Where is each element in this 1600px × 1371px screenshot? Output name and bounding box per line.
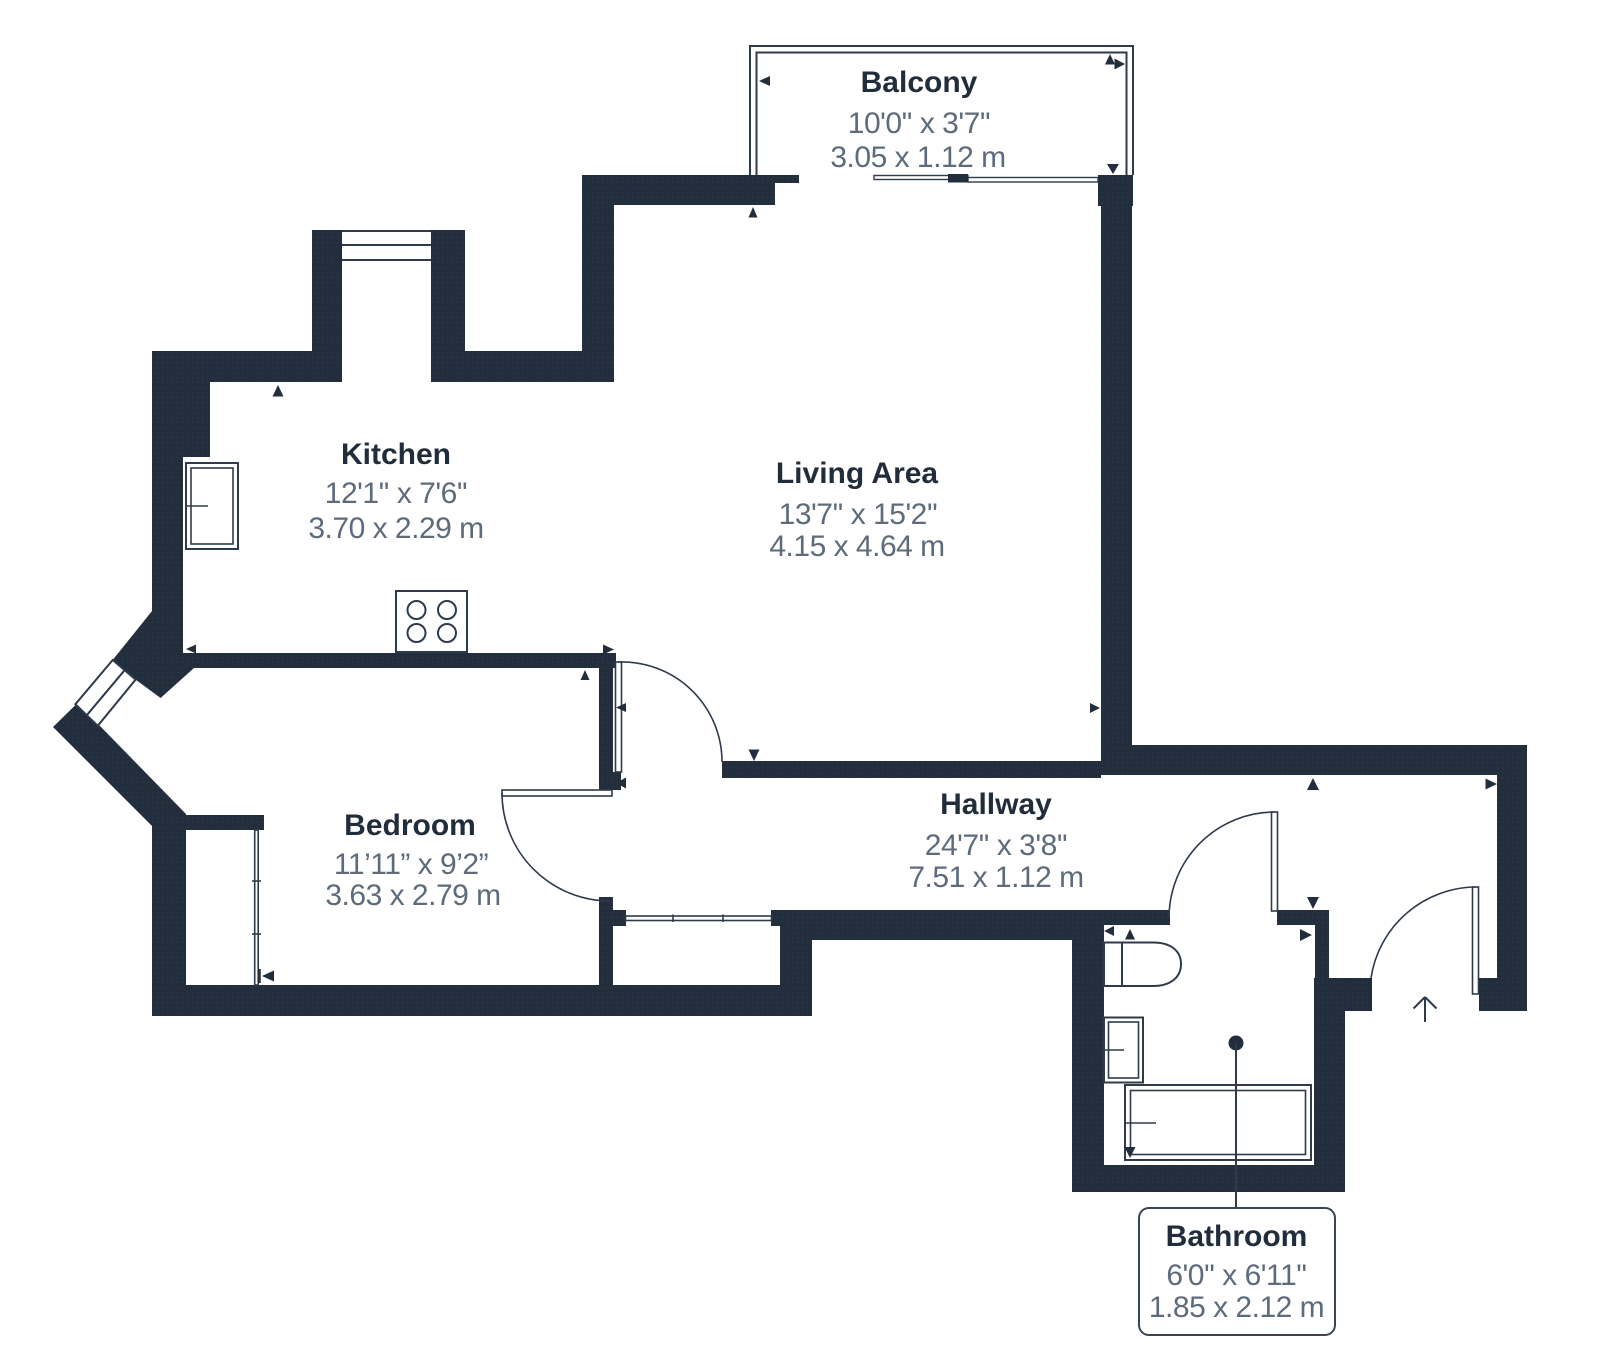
svg-text:Kitchen: Kitchen <box>341 438 451 471</box>
svg-text:24'7'' x 3'8'': 24'7'' x 3'8'' <box>925 829 1067 862</box>
svg-text:10'0'' x 3'7'': 10'0'' x 3'7'' <box>848 107 990 140</box>
svg-text:Bathroom: Bathroom <box>1166 1220 1308 1253</box>
svg-text:4.15 x 4.64 m: 4.15 x 4.64 m <box>769 530 944 563</box>
svg-text:Bedroom: Bedroom <box>344 809 476 842</box>
svg-text:3.63 x 2.79 m: 3.63 x 2.79 m <box>325 879 500 912</box>
svg-text:7.51 x 1.12 m: 7.51 x 1.12 m <box>908 861 1083 894</box>
svg-text:13'7'' x 15'2'': 13'7'' x 15'2'' <box>779 498 938 531</box>
svg-text:Hallway: Hallway <box>940 788 1052 821</box>
svg-text:11’11” x 9’2”: 11’11” x 9’2” <box>334 848 488 881</box>
svg-text:12'1'' x 7'6'': 12'1'' x 7'6'' <box>325 477 467 510</box>
svg-text:Balcony: Balcony <box>861 66 978 99</box>
svg-text:3.05 x 1.12 m: 3.05 x 1.12 m <box>830 141 1005 174</box>
svg-text:1.85 x 2.12 m: 1.85 x 2.12 m <box>1149 1291 1324 1324</box>
svg-text:6'0'' x 6'11'': 6'0'' x 6'11'' <box>1166 1259 1306 1292</box>
svg-text:Living Area: Living Area <box>776 457 939 490</box>
svg-text:3.70 x 2.29 m: 3.70 x 2.29 m <box>308 512 483 545</box>
